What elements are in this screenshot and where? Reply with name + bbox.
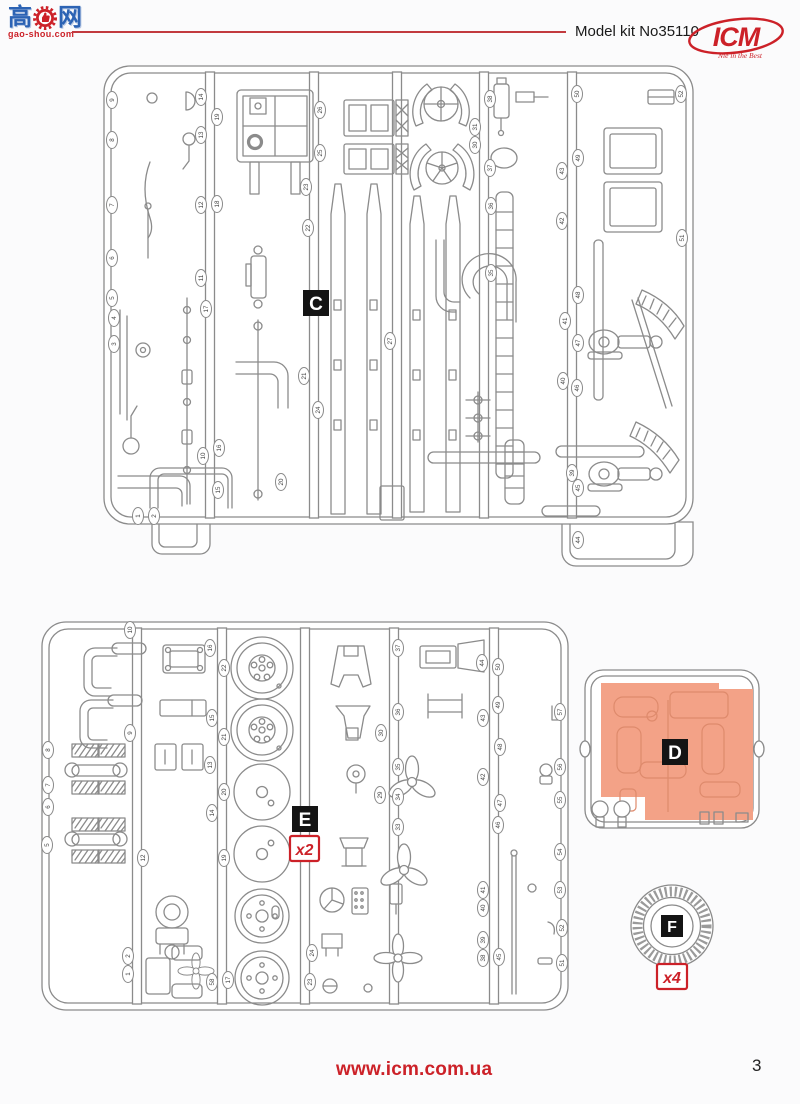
part-number-tag: 6 (43, 799, 54, 816)
part-number-tag: 52 (676, 86, 687, 103)
part-number-tag: 14 (196, 89, 207, 106)
part-number-tag: 33 (393, 819, 404, 836)
svg-text:30: 30 (472, 141, 479, 148)
part-number-tag: 23 (305, 974, 316, 991)
svg-text:20: 20 (278, 478, 285, 485)
svg-text:10: 10 (200, 452, 207, 459)
svg-text:52: 52 (559, 924, 566, 931)
sprue-c-diagram: 9876543121413121117101615191826252322212… (104, 66, 693, 566)
svg-text:13: 13 (207, 761, 214, 768)
svg-text:44: 44 (575, 536, 582, 543)
part-number-tag: 22 (303, 220, 314, 237)
part-number-tag: 23 (301, 179, 312, 196)
part-number-tag: 21 (299, 368, 310, 385)
part-number-tag: 42 (478, 769, 489, 786)
svg-text:43: 43 (559, 167, 566, 174)
svg-text:49: 49 (495, 701, 502, 708)
part-number-tag: 41 (478, 882, 489, 899)
header-rule (72, 31, 566, 33)
svg-text:51: 51 (559, 959, 566, 966)
part-number-tag: 53 (555, 882, 566, 899)
part-number-tag: 10 (125, 622, 136, 639)
svg-text:29: 29 (377, 791, 384, 798)
svg-text:2: 2 (151, 514, 158, 518)
part-number-tag: 35 (486, 265, 497, 282)
svg-text:48: 48 (497, 743, 504, 750)
svg-text:55: 55 (557, 796, 564, 803)
part-f-tire: F x4 (631, 885, 713, 989)
svg-text:31: 31 (472, 123, 479, 130)
watermark-logo: 高 网 gao-shou.com (8, 5, 118, 39)
part-number-tag: 19 (212, 109, 223, 126)
svg-text:37: 37 (395, 644, 402, 651)
svg-text:40: 40 (480, 904, 487, 911)
part-number-tag: 21 (219, 729, 230, 746)
part-number-tag: 24 (307, 945, 318, 962)
part-number-tag: 5 (42, 837, 53, 854)
part-number-tag: 57 (555, 704, 566, 721)
part-number-tag: 26 (315, 102, 326, 119)
svg-text:12: 12 (198, 201, 205, 208)
part-number-tag: 7 (107, 197, 118, 214)
svg-text:26: 26 (317, 106, 324, 113)
part-number-tag: 12 (138, 850, 149, 867)
part-number-tag: 8 (43, 742, 54, 759)
part-number-tag: 13 (196, 127, 207, 144)
svg-text:30: 30 (378, 729, 385, 736)
svg-text:27: 27 (387, 337, 394, 344)
watermark-char-left: 高 (8, 5, 32, 31)
svg-text:38: 38 (480, 954, 487, 961)
sprue-e-label: E (292, 806, 318, 832)
svg-text:54: 54 (557, 848, 564, 855)
svg-text:17: 17 (203, 305, 210, 312)
part-number-tag: 40 (478, 900, 489, 917)
part-number-tag: 38 (478, 950, 489, 967)
part-number-tag: 37 (485, 160, 496, 177)
svg-text:4: 4 (111, 316, 118, 320)
svg-text:38: 38 (487, 95, 494, 102)
part-number-tag: 5 (107, 290, 118, 307)
svg-text:46: 46 (574, 384, 581, 391)
sprue-c-label: C (303, 290, 329, 316)
svg-text:44: 44 (479, 659, 486, 666)
svg-text:41: 41 (480, 886, 487, 893)
svg-text:52: 52 (678, 90, 685, 97)
svg-text:15: 15 (215, 486, 222, 493)
part-number-tag: 1 (123, 966, 134, 983)
part-number-tag: 11 (196, 270, 207, 287)
page-number: 3 (752, 1056, 761, 1076)
svg-text:8: 8 (109, 138, 116, 142)
part-number-tag: 44 (477, 655, 488, 672)
sprue-e-diagram: 8765109122116221521132014195817242337363… (42, 622, 569, 1011)
part-number-tag: 14 (207, 805, 218, 822)
svg-text:7: 7 (45, 783, 52, 787)
part-number-tag: 36 (486, 198, 497, 215)
sprue-d-diagram: D (580, 670, 764, 828)
svg-text:35: 35 (395, 763, 402, 770)
svg-text:58: 58 (209, 978, 216, 985)
part-number-tag: 25 (315, 145, 326, 162)
part-f-letter: F (667, 919, 677, 936)
part-number-tag: 15 (213, 482, 224, 499)
part-number-tag: 54 (555, 844, 566, 861)
svg-text:9: 9 (127, 731, 134, 735)
part-number-tag: 27 (385, 333, 396, 350)
part-number-tag: 43 (557, 163, 568, 180)
svg-text:1: 1 (125, 972, 132, 976)
part-number-tag: 50 (572, 86, 583, 103)
part-number-tag: 45 (573, 480, 584, 497)
svg-text:16: 16 (207, 644, 214, 651)
part-number-tag: 16 (205, 640, 216, 657)
svg-text:7: 7 (109, 203, 116, 207)
part-number-tag: 48 (573, 287, 584, 304)
part-number-tag: 47 (573, 335, 584, 352)
svg-text:50: 50 (495, 663, 502, 670)
part-number-tag: 24 (313, 402, 324, 419)
part-number-tag: 18 (212, 196, 223, 213)
part-number-tag: 17 (201, 301, 212, 318)
part-number-tag: 20 (219, 784, 230, 801)
svg-text:11: 11 (198, 274, 205, 281)
svg-text:3: 3 (111, 342, 118, 346)
svg-text:6: 6 (109, 256, 116, 260)
part-number-tag: 6 (107, 250, 118, 267)
part-number-tag: 46 (493, 817, 504, 834)
svg-text:51: 51 (679, 234, 686, 241)
svg-text:23: 23 (307, 978, 314, 985)
svg-text:36: 36 (488, 202, 495, 209)
svg-text:24: 24 (309, 949, 316, 956)
part-number-tag: 30 (470, 137, 481, 154)
svg-text:56: 56 (557, 763, 564, 770)
svg-text:43: 43 (480, 714, 487, 721)
footer-url: www.icm.com.ua (336, 1059, 492, 1081)
svg-text:49: 49 (575, 154, 582, 161)
part-number-tag: 2 (123, 948, 134, 965)
part-number-tag: 37 (393, 640, 404, 657)
part-number-tag: 58 (207, 974, 218, 991)
part-number-tag: 12 (196, 197, 207, 214)
svg-text:22: 22 (305, 224, 312, 231)
sprue-c-letter: C (309, 294, 323, 315)
svg-text:21: 21 (301, 372, 308, 379)
svg-text:25: 25 (317, 149, 324, 156)
part-number-tag: 50 (493, 659, 504, 676)
part-number-tag: 30 (376, 725, 387, 742)
part-number-tag: 42 (557, 213, 568, 230)
svg-text:1: 1 (135, 514, 142, 518)
part-number-tag: 3 (109, 336, 120, 353)
sprue-e-quantity: x2 (295, 842, 314, 859)
part-number-tag: 4 (109, 310, 120, 327)
svg-text:22: 22 (221, 664, 228, 671)
part-number-tag: 19 (219, 850, 230, 867)
part-number-tag: 52 (557, 920, 568, 937)
svg-text:14: 14 (198, 93, 205, 100)
svg-text:21: 21 (221, 733, 228, 740)
sprue-e-quantity-badge: x2 (290, 836, 319, 861)
part-number-tag: 8 (107, 132, 118, 149)
part-number-tag: 36 (393, 704, 404, 721)
svg-text:24: 24 (315, 406, 322, 413)
svg-text:42: 42 (559, 217, 566, 224)
part-number-tag: 17 (223, 972, 234, 989)
part-number-tag: 29 (375, 787, 386, 804)
svg-text:36: 36 (395, 708, 402, 715)
svg-text:34: 34 (395, 793, 402, 800)
svg-text:39: 39 (569, 469, 576, 476)
part-number-tag: 38 (485, 91, 496, 108)
svg-text:50: 50 (574, 90, 581, 97)
svg-text:2: 2 (125, 954, 132, 958)
part-number-tag: 41 (560, 313, 571, 330)
svg-text:10: 10 (127, 626, 134, 633)
svg-text:57: 57 (557, 708, 564, 715)
icm-logo-tagline: Nie in the Best (717, 51, 763, 60)
svg-text:16: 16 (216, 444, 223, 451)
svg-text:33: 33 (395, 823, 402, 830)
part-number-tag: 15 (207, 710, 218, 727)
svg-text:17: 17 (225, 976, 232, 983)
part-number-tag: 40 (558, 373, 569, 390)
part-number-tag: 49 (493, 697, 504, 714)
sprue-d-letter: D (668, 743, 682, 764)
part-number-tag: 44 (573, 532, 584, 549)
watermark-char-right: 网 (58, 5, 82, 31)
part-number-tag: 31 (470, 119, 481, 136)
part-f-label: F (661, 915, 683, 937)
part-number-tag: 16 (214, 440, 225, 457)
svg-text:14: 14 (209, 809, 216, 816)
part-number-tag: 39 (478, 932, 489, 949)
svg-text:19: 19 (214, 113, 221, 120)
svg-text:6: 6 (45, 805, 52, 809)
svg-text:45: 45 (496, 953, 503, 960)
svg-text:47: 47 (497, 799, 504, 806)
svg-text:47: 47 (575, 339, 582, 346)
svg-text:37: 37 (487, 164, 494, 171)
svg-text:39: 39 (480, 936, 487, 943)
part-number-tag: 1 (133, 508, 144, 525)
svg-text:48: 48 (575, 291, 582, 298)
part-number-tag: 55 (555, 792, 566, 809)
svg-text:9: 9 (109, 98, 116, 102)
svg-text:18: 18 (214, 200, 221, 207)
part-number-tag: 10 (198, 448, 209, 465)
svg-text:41: 41 (562, 317, 569, 324)
svg-text:53: 53 (557, 886, 564, 893)
part-number-tag: 51 (677, 230, 688, 247)
icm-logo-text: ICM (713, 22, 761, 52)
svg-text:15: 15 (209, 714, 216, 721)
icm-logo: ICM Nie in the Best (686, 12, 786, 71)
part-number-tag: 45 (494, 949, 505, 966)
part-number-tag: 43 (478, 710, 489, 727)
sprue-d-label: D (662, 739, 688, 765)
part-number-tag: 49 (573, 150, 584, 167)
part-number-tag: 51 (557, 955, 568, 972)
part-f-quantity-badge: x4 (657, 964, 687, 989)
part-number-tag: 20 (276, 474, 287, 491)
part-f-quantity: x4 (662, 970, 681, 987)
kit-number-label: Model kit No35110 (575, 23, 699, 40)
part-number-tag: 34 (393, 789, 404, 806)
gear-thumb-icon (33, 6, 57, 30)
part-number-tag: 22 (219, 660, 230, 677)
svg-text:40: 40 (560, 377, 567, 384)
svg-text:19: 19 (221, 854, 228, 861)
part-number-tag: 48 (495, 739, 506, 756)
svg-text:8: 8 (45, 748, 52, 752)
part-number-tag: 7 (43, 777, 54, 794)
svg-text:45: 45 (575, 484, 582, 491)
svg-text:5: 5 (109, 296, 116, 300)
svg-text:13: 13 (198, 131, 205, 138)
svg-text:42: 42 (480, 773, 487, 780)
part-number-tag: 13 (205, 757, 216, 774)
sprue-e-letter: E (299, 810, 312, 831)
svg-text:46: 46 (495, 821, 502, 828)
part-number-tag: 9 (107, 92, 118, 109)
part-number-tag: 35 (393, 759, 404, 776)
part-number-tag: 56 (555, 759, 566, 776)
svg-text:20: 20 (221, 788, 228, 795)
part-number-tag: 9 (125, 725, 136, 742)
svg-text:23: 23 (303, 183, 310, 190)
part-number-tag: 47 (495, 795, 506, 812)
svg-text:35: 35 (488, 269, 495, 276)
part-number-tag: 2 (149, 508, 160, 525)
svg-text:12: 12 (140, 854, 147, 861)
svg-text:5: 5 (44, 843, 51, 847)
part-number-tag: 46 (572, 380, 583, 397)
instruction-sheet-art: 9876543121413121117101615191826252322212… (0, 0, 800, 1104)
part-number-tag: 39 (567, 465, 578, 482)
